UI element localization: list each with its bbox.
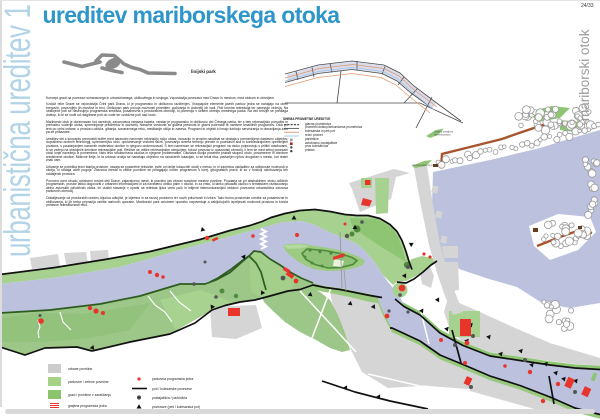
svg-text:obrezna pespot: obrezna pespot: [434, 134, 451, 137]
svg-text:vstopna tocka ob jezu: vstopna tocka ob jezu: [412, 164, 436, 167]
